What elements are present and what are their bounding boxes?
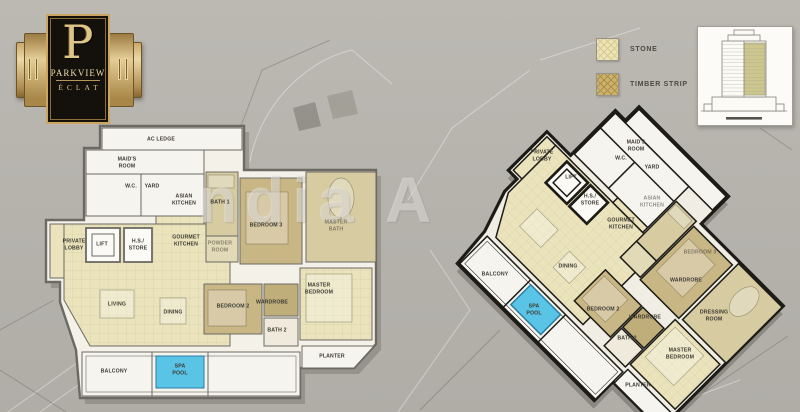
legend-label: TIMBER STRIP — [630, 81, 688, 88]
legend-label: STONE — [630, 46, 658, 53]
logo-sub-name: ÉCLAT — [58, 83, 101, 92]
floor-plan-brochure-page: ndia A AC LEDGEMAID'S ROOMW.C.YARDASIAN … — [0, 0, 800, 412]
logo-core-panel: P PARKVIEW ÉCLAT — [46, 14, 110, 124]
logo-notch — [118, 58, 121, 80]
logo-monogram: P — [63, 18, 94, 66]
material-swatch-timber-strip — [596, 73, 619, 96]
legend-item-stone: STONE — [596, 38, 688, 61]
logo-notch — [35, 58, 38, 80]
legend-item-timber-strip: TIMBER STRIP — [596, 73, 688, 96]
floor-plan-orthogonal — [46, 126, 376, 398]
material-legend: STONETIMBER STRIP — [596, 38, 688, 108]
logo-notch — [28, 58, 31, 80]
building-elevation-key — [697, 26, 793, 126]
logo-notch — [125, 58, 128, 80]
logo-divider — [56, 80, 100, 81]
elevation-caption-bar — [726, 117, 762, 120]
tower-elevation-icon — [698, 27, 790, 123]
parkview-eclat-logo: P PARKVIEW ÉCLAT — [16, 12, 140, 126]
material-swatch-stone — [596, 38, 619, 61]
logo-brand-name: PARKVIEW — [51, 68, 106, 78]
